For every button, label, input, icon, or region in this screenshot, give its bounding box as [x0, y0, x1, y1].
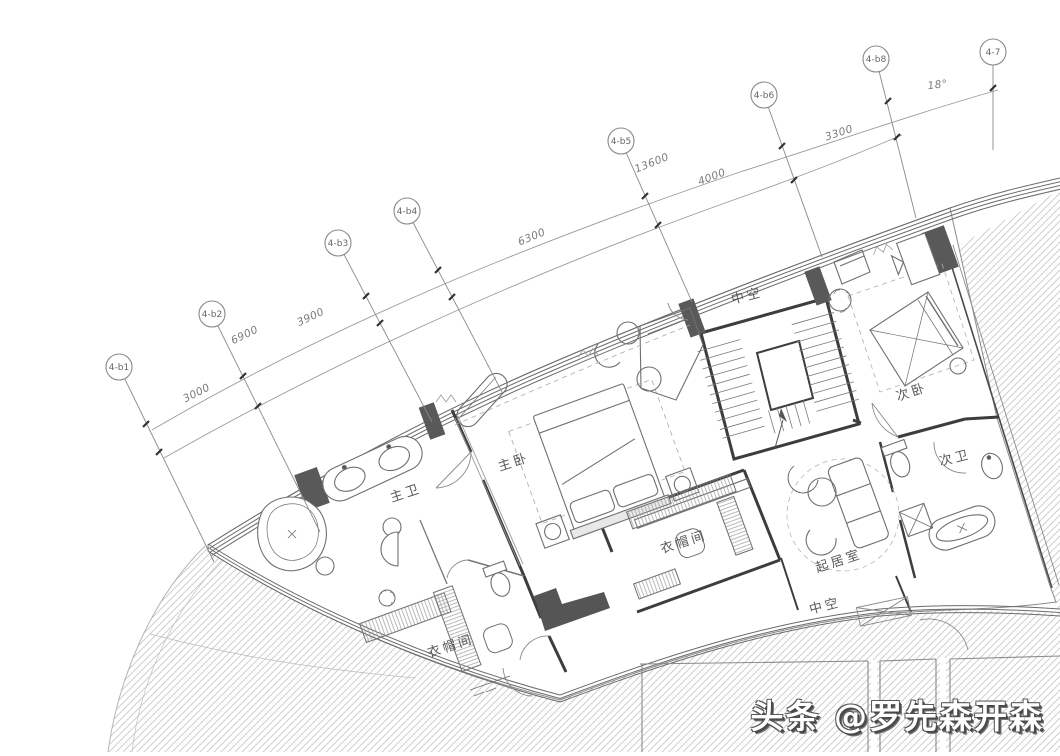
- axis-4-b3: 4-b3: [325, 230, 432, 422]
- stool: [316, 557, 334, 575]
- dim-6900: 6900: [229, 324, 260, 347]
- dim-6300: 6300: [516, 226, 547, 248]
- dim-18deg: 18°: [927, 78, 948, 92]
- dim-3300: 3300: [824, 123, 855, 143]
- watermark: 头条 @罗先森开森: [751, 690, 1045, 738]
- watermark-prefix: 头条: [751, 697, 835, 736]
- dim-4000: 4000: [696, 166, 727, 188]
- axis-bubble-label: 4-b5: [611, 137, 631, 147]
- dim-13600: 13600: [633, 151, 671, 176]
- floor-plan-canvas: 4-b14-b24-b34-b44-b54-b64-b84-7 30006900…: [0, 0, 1060, 752]
- axis-bubble-label: 4-b3: [328, 239, 348, 249]
- axis-4-b5: 4-b5: [608, 128, 692, 302]
- axis-bubble-label: 4-b4: [397, 207, 418, 217]
- axis-bubble-label: 4-b8: [866, 55, 887, 65]
- axis-bubble-label: 4-b6: [754, 91, 775, 101]
- axis-bubble-label: 4-b1: [109, 363, 129, 373]
- dim-3900: 3900: [295, 306, 326, 329]
- floor-plan-svg: 4-b14-b24-b34-b44-b54-b64-b84-7 30006900…: [0, 0, 1060, 752]
- dim-3000: 3000: [181, 381, 212, 405]
- axis-bubble-label: 4-7: [986, 48, 1001, 58]
- axis-bubble-label: 4-b2: [202, 310, 222, 320]
- axis-4-b4: 4-b4: [394, 198, 502, 392]
- watermark-handle: @罗先森开森: [834, 697, 1044, 736]
- axis-4-b6: 4-b6: [751, 82, 822, 257]
- axis-4-b8: 4-b8: [863, 46, 916, 218]
